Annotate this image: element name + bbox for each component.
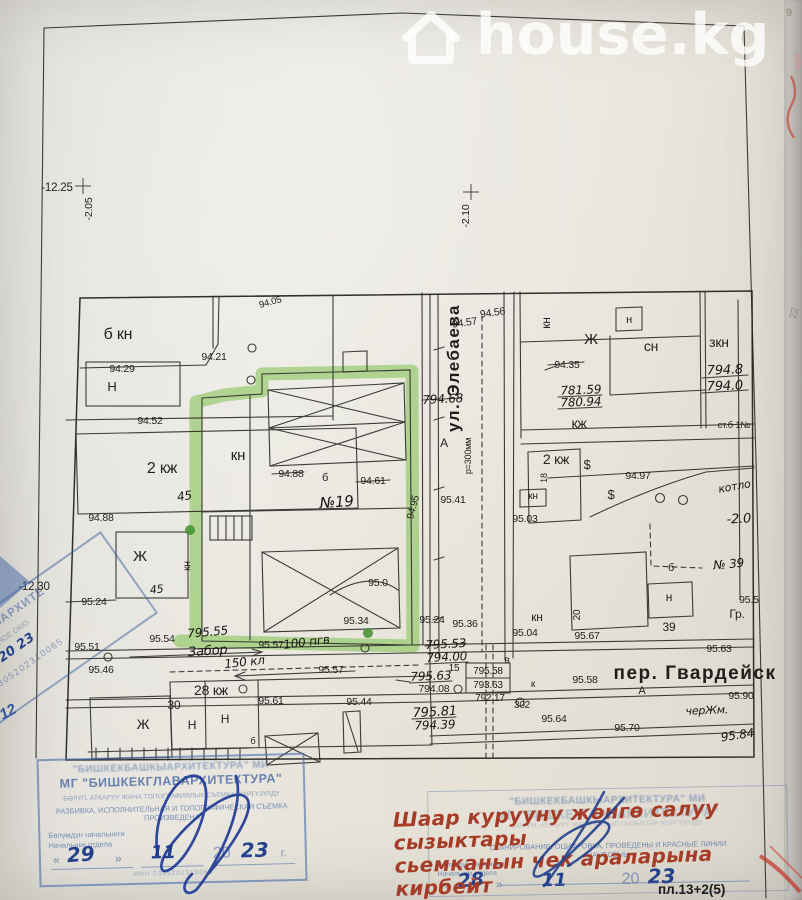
map-label: Ж xyxy=(133,548,147,565)
map-label: 28 кж xyxy=(194,682,229,698)
map-label: Н xyxy=(221,712,229,726)
map-label: Гр. xyxy=(729,607,744,621)
map-label: 793.63 xyxy=(473,680,503,691)
map-label: н xyxy=(626,314,632,326)
map-label: б кн xyxy=(104,326,133,343)
map-label: сн xyxy=(644,338,658,354)
map-label: 95.46 xyxy=(88,664,114,676)
map-label: кн xyxy=(531,610,542,624)
map-label: к xyxy=(531,679,536,690)
map-label: 95.03 xyxy=(512,513,538,525)
stamp-day: 29 xyxy=(66,841,96,867)
date-rule xyxy=(141,865,203,868)
map-label: Забор xyxy=(188,643,228,661)
map-label: 94.29 xyxy=(109,363,135,375)
map-label: 95.64 xyxy=(541,713,567,725)
map-label: 95.5 xyxy=(739,594,759,606)
map-label: 94.52 xyxy=(137,415,163,427)
stamp-year-pre: 20 xyxy=(213,845,231,863)
map-label: 95.36 xyxy=(452,618,478,630)
map-label: А xyxy=(440,436,448,450)
map-label: 95.57 xyxy=(258,639,284,651)
red-handwritten-note: Шаар курууну жөнгө салуу сызыктары сьемк… xyxy=(392,793,802,900)
date-rule xyxy=(211,863,295,866)
date-rule xyxy=(51,867,133,870)
map-label: Ж xyxy=(137,716,150,732)
map-label: р=300мм xyxy=(463,438,473,474)
map-label: 20 xyxy=(572,609,583,620)
map-label: 95.84 xyxy=(720,726,755,745)
stamp-head-kg: Бөлүмдүн начальниги xyxy=(48,829,125,840)
map-label: $ xyxy=(607,487,615,502)
map-label: 95.41 xyxy=(440,494,466,506)
map-label: $ xyxy=(583,457,591,472)
street-gvardeysky-label: пер. Гвардейск xyxy=(613,663,776,684)
stamp-bishkekglavarkhitektura: "БИШКЕКБАШКЫАРХИТЕКТУРА" МИ МГ "БИШКЕКГЛ… xyxy=(36,753,307,888)
map-label: 94.61 xyxy=(360,475,386,487)
map-label: 794.8 xyxy=(707,362,744,378)
map-label: 94.35 xyxy=(554,359,580,371)
bench-mark-12-25: -12.25 xyxy=(41,182,72,194)
map-label: 795.63 xyxy=(410,668,451,683)
map-label: 2 кж xyxy=(147,460,178,477)
map-label: 95.04 xyxy=(512,627,538,639)
map-label: 95.34 xyxy=(343,615,369,627)
green-node xyxy=(185,525,195,535)
map-label: 94.88 xyxy=(278,468,304,480)
map-label: б xyxy=(251,736,256,746)
map-label: 45 xyxy=(176,488,193,504)
map-label: черЖм. xyxy=(685,703,728,717)
map-label: 94.97 xyxy=(625,470,651,482)
map-label: 22 xyxy=(788,306,802,320)
plot-number: №19 xyxy=(318,492,354,512)
map-label: кн xyxy=(528,491,538,502)
map-label: 302 xyxy=(514,700,531,711)
map-label: 94.21 xyxy=(201,351,227,363)
map-label: б xyxy=(322,472,328,484)
map-label: 95.44 xyxy=(346,696,372,708)
map-label: 150 кл xyxy=(224,653,266,671)
stamp-year: 23 xyxy=(240,838,268,863)
fiducial-crosses xyxy=(75,178,479,200)
map-label: б xyxy=(668,562,674,574)
map-label: 794.0 xyxy=(707,378,744,394)
map-label: 18 xyxy=(539,473,549,483)
map-label: 45 xyxy=(149,582,164,596)
map-label: Н xyxy=(188,718,196,732)
map-label: 794.08 xyxy=(419,683,450,695)
map-label: кж xyxy=(571,415,587,431)
map-label: кн xyxy=(539,317,553,328)
scanned-plan-photo: -12.25-2.05-2.10-12.3092212б кн94.29Н94.… xyxy=(0,0,802,900)
map-label: 95.54 xyxy=(149,633,175,645)
stamp-year-suffix: г. xyxy=(281,847,287,859)
map-label: -2.0 xyxy=(726,511,751,527)
sheet-code: пл.13+2(5) xyxy=(658,882,725,897)
map-label: 95.57 xyxy=(318,664,344,676)
map-label: 30 xyxy=(168,698,181,712)
map-label: кн xyxy=(182,561,193,571)
map-label: 794.00 xyxy=(426,649,468,665)
map-label: в xyxy=(504,655,509,666)
map-label: 792.17 xyxy=(475,693,505,704)
map-label: 39 xyxy=(663,620,676,634)
map-label: котло xyxy=(717,477,752,496)
map-label: 95.70 xyxy=(614,722,640,734)
map-label: 95.67 xyxy=(574,630,600,642)
map-label: 95.90 xyxy=(728,690,754,702)
map-label: 780.94 xyxy=(560,394,601,409)
map-label: н xyxy=(666,590,672,604)
map-label: № 39 xyxy=(712,556,745,573)
map-label: Ж xyxy=(584,331,598,348)
street-elebaeva-label: ул. Элебаева xyxy=(444,304,463,432)
green-node xyxy=(363,628,373,638)
stamp-month: 11 xyxy=(151,842,177,864)
map-label: ст.б 1№ xyxy=(718,420,751,431)
map-label: 95.24 xyxy=(419,614,445,626)
map-label: -2.10 xyxy=(460,204,472,227)
map-label: 2 кж xyxy=(543,451,570,467)
map-label: 95.61 xyxy=(258,695,284,707)
quote-open: « xyxy=(53,853,60,867)
map-label: 94.56 xyxy=(479,305,506,320)
map-label: 95.0 xyxy=(368,577,388,589)
map-label: зкн xyxy=(709,334,729,350)
map-label: Н xyxy=(107,379,116,394)
map-label: -2.05 xyxy=(83,197,95,220)
map-label: 94.88 xyxy=(88,512,114,524)
map-label: 794.39 xyxy=(414,717,455,732)
map-label: 9 xyxy=(786,7,792,19)
quote-close: » xyxy=(115,851,122,865)
map-label: 795.58 xyxy=(473,666,503,677)
map-label: А xyxy=(638,685,646,697)
map-label: 95.63 xyxy=(706,643,732,655)
map-label: кн xyxy=(231,447,245,464)
map-label: 95.58 xyxy=(572,674,598,686)
